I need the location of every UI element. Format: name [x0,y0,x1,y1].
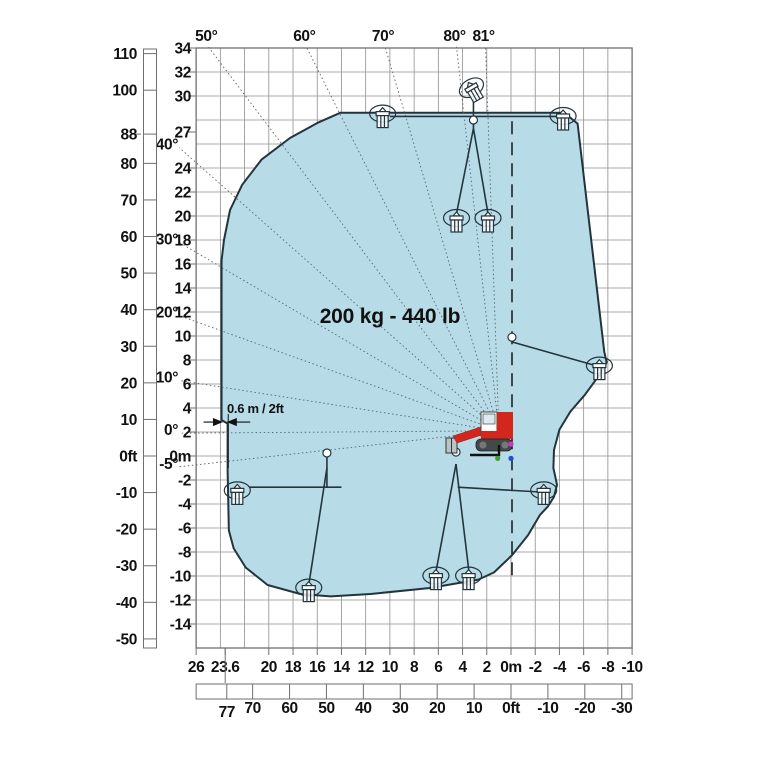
boom-joint [508,333,516,341]
bottom-feet-tick-label: -30 [611,700,632,717]
angle-label-left: 0° [164,422,178,439]
working-envelope-area [222,113,607,597]
left-meter-tick-label: 14 [175,281,192,298]
left-meter-tick-label: 2 [183,425,191,442]
bottom-meter-tick-label: 18 [285,659,302,676]
machine-hood [497,412,513,434]
bottom-meter-tick-label: 4 [458,659,467,676]
machine-cab-window [483,414,495,424]
reference-dot [495,456,500,461]
left-meter-tick-label: -2 [178,473,191,490]
angle-label-top: 50° [195,28,217,45]
left-meter-tick-label: 0m [169,449,191,466]
basket-body [482,220,493,232]
bottom-meter-tick-label: -8 [601,659,615,676]
left-meter-tick-label: 8 [183,353,192,370]
basket-body [430,578,441,590]
bottom-meter-tick-label: 20 [261,659,277,676]
angle-label-left: 10° [156,369,178,386]
basket-body [594,368,605,380]
bottom-meter-tick-label: 0m [500,659,522,676]
left-meter-tick-label: 18 [175,233,192,250]
left-meter-tick-label: 16 [175,257,192,274]
left-feet-tick-label: -50 [116,631,137,648]
left-feet-tick-label: 88 [121,127,138,144]
bottom-meter-tick-label: 12 [357,659,373,676]
bottom-feet-tick-label: -10 [537,700,558,717]
left-meter-tick-label: 4 [183,401,192,418]
bottom-meter-tick-label: 2 [483,659,491,676]
left-feet-tick-label: -10 [116,485,137,502]
basket-body [538,492,549,504]
left-feet-tick-label: 10 [121,412,137,429]
bottom-meter-tick-label: -6 [577,659,591,676]
bottom-feet-tick-label: 30 [392,700,408,717]
machine-wheel [502,442,509,449]
bottom-meter-tick-label: -10 [621,659,642,676]
left-feet-tick-label: 70 [121,192,137,209]
left-meter-tick-label: 24 [175,161,192,178]
left-feet-tick-label: -40 [116,595,137,612]
left-meter-tick-label: -4 [178,497,192,514]
basket-body [451,220,462,232]
left-meter-tick-label: -10 [170,569,191,586]
bottom-feet-tick-label: 77 [219,704,235,721]
left-meter-tick-label: 22 [175,185,191,202]
left-meter-tick-label: 27 [175,125,191,142]
bottom-meter-tick-label: 6 [434,659,443,676]
bottom-feet-tick-label: 70 [244,700,260,717]
boom-joint [469,116,477,124]
angle-label-top: 70° [372,28,394,45]
bottom-feet-tick-label: 40 [355,700,371,717]
working-envelope-chart: 50°60°70°80°81°40°30°20°10°0°-5°11010088… [0,0,768,768]
basket-rail [231,488,244,492]
basket-rail [481,216,494,220]
bottom-ruler-strip [196,684,632,699]
bottom-meter-tick-label: -2 [529,659,542,676]
bottom-meter-tick-label: 26 [188,659,205,676]
bottom-meter-tick-label: 14 [333,659,350,676]
load-chart-page: 50°60°70°80°81°40°30°20°10°0°-5°11010088… [0,0,768,768]
left-meter-tick-label: 12 [175,305,191,322]
left-meter-tick-label: -12 [170,593,191,610]
left-feet-tick-label: 0ft [119,449,137,466]
left-meter-tick-label: 6 [183,377,192,394]
left-meter-tick-label: 30 [175,89,191,106]
left-feet-tick-label: 40 [121,302,137,319]
capacity-label: 200 kg - 440 lb [320,305,461,328]
basket-body [463,578,474,590]
bottom-feet-tick-label: 20 [429,700,445,717]
bottom-feet-tick-label: 60 [281,700,297,717]
basket-body [377,116,388,128]
reference-dot [508,456,513,461]
work-basket-icon [456,74,490,106]
left-meter-tick-label: -6 [178,521,192,538]
left-meter-tick-label: 34 [175,41,192,58]
left-meter-tick-label: -14 [170,617,192,634]
left-feet-tick-label: 60 [121,229,137,246]
left-meter-tick-label: -8 [178,545,192,562]
bottom-feet-tick-label: 0ft [502,700,520,717]
left-feet-tick-label: 20 [121,375,137,392]
angle-label-top: 81° [472,28,494,45]
boom-joint [323,449,331,457]
basket-body [558,118,569,130]
left-feet-tick-label: 100 [112,83,137,100]
angle-label-top: 60° [293,28,315,45]
basket-body [303,590,314,602]
bottom-meter-tick-label: 10 [382,659,398,676]
left-feet-tick-label: 80 [121,156,137,173]
bottom-meter-tick-label: 8 [410,659,419,676]
offset-annotation-label: 0.6 m / 2ft [227,401,285,416]
machine-wheel [480,442,487,449]
left-ruler-strip [144,49,157,648]
left-feet-tick-label: 30 [121,339,137,356]
machine-body-stripe [481,431,513,439]
basket-body [232,492,243,504]
left-meter-tick-label: 32 [175,65,191,82]
basket-rail [450,216,463,220]
angle-label-top: 80° [443,28,465,45]
left-feet-tick-label: 50 [121,266,137,283]
bottom-meter-tick-label: 16 [309,659,326,676]
basket-rail [593,364,606,368]
basket-rail [537,488,550,492]
left-feet-tick-label: 110 [113,46,137,63]
bottom-feet-tick-label: -20 [574,700,595,717]
left-meter-tick-label: 20 [175,209,191,226]
bottom-feet-tick-label: 10 [466,700,482,717]
reference-dot [508,441,513,446]
left-meter-tick-label: 10 [175,329,191,346]
bottom-feet-tick-label: 50 [318,700,334,717]
bottom-meter-tick-label: -4 [553,659,567,676]
left-feet-tick-label: -30 [116,558,137,575]
left-feet-tick-label: -20 [116,522,137,539]
bottom-meter-axis [196,648,632,655]
